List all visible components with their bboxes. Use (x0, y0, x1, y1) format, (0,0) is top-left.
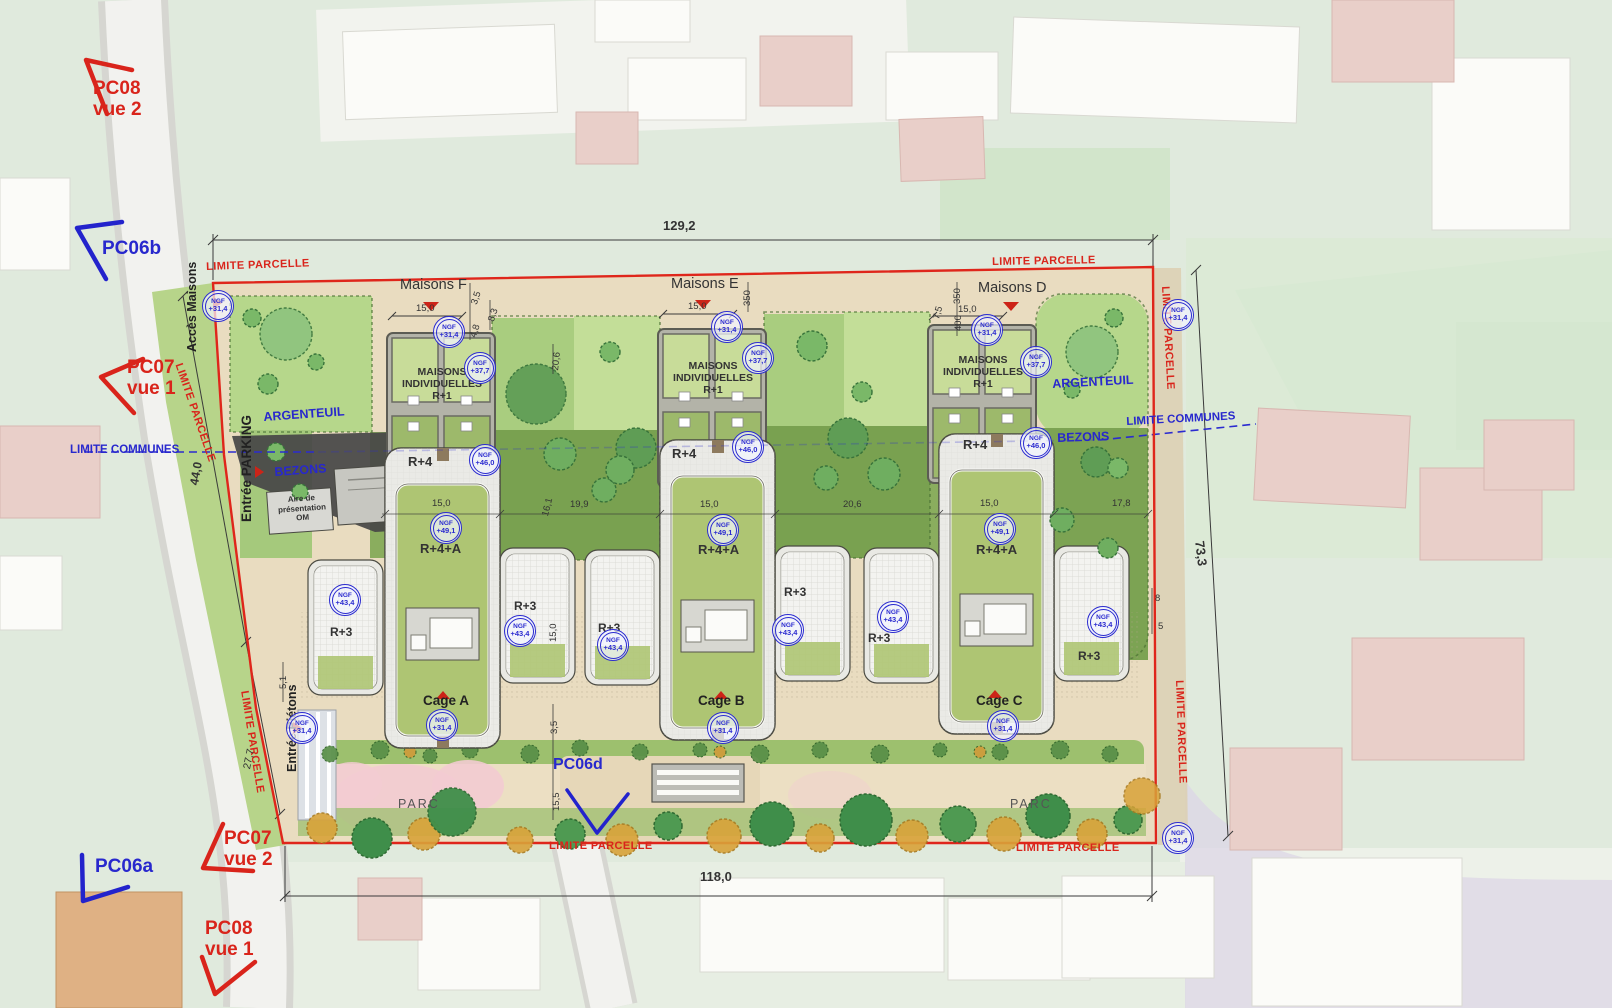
ngf-marker-r4a-d: NGF+49,1 (984, 513, 1016, 545)
limite-parcelle-south-left: LIMITE PARCELLE (549, 841, 653, 853)
pc06b-label: PC06b (102, 238, 161, 259)
r3-label-6: R+3 (1078, 650, 1100, 663)
limite-parcelle-east-lower: LIMITE PARCELLE (1172, 680, 1187, 784)
limite-parcelle-top-right: LIMITE PARCELLE (992, 255, 1096, 268)
ngf-marker-r4a-f: NGF+49,1 (430, 512, 462, 544)
ngf-marker-se: NGF+31,4 (1162, 822, 1194, 854)
cage-b-label: Cage B (698, 694, 745, 708)
ngf-marker-cage-a: NGF+31,4 (426, 709, 458, 741)
maisons-e-label: Maisons E (671, 277, 739, 292)
r3-label-5: R+3 (868, 632, 890, 645)
r4-label-f: R+4 (408, 455, 432, 469)
parc-label-west: PARC (398, 798, 440, 811)
dim-15-f-top: 15,0 (416, 304, 435, 314)
ngf-marker-r4-e: NGF+46,0 (732, 431, 764, 463)
dim-15-d-top: 15,0 (958, 305, 977, 315)
ngf-marker-r3-2: NGF+43,4 (504, 615, 536, 647)
limite-communes-west: LIMITE COMMUNES (70, 444, 179, 456)
pc08-vue1-label: PC08vue 1 (205, 918, 254, 961)
pc06a-label: PC06a (95, 856, 153, 877)
bezons-east: BEZONS (1057, 430, 1110, 445)
ngf-marker-cage-b: NGF+31,4 (707, 712, 739, 744)
r4a-label-f: R+4+A (420, 542, 461, 556)
dim-top-total: 129,2 (663, 219, 696, 233)
ngf-marker-r3-6: NGF+43,4 (1087, 606, 1119, 638)
dim-350-e: 350 (743, 290, 753, 306)
pc07-vue2-label: PC07vue 2 (224, 828, 273, 871)
r3-label-1: R+3 (330, 626, 352, 639)
pc06d-label: PC06d (553, 756, 603, 774)
dim-15-d-mid: 15,0 (980, 499, 999, 509)
dim-20-6-f: 20,6 (551, 352, 563, 371)
r3-label-2: R+3 (514, 600, 536, 613)
pc08-vue2-label: PC08vue 2 (93, 78, 142, 121)
site-plan: PC08vue 2 PC06b PC07vue 1 PC06a PC07vue … (0, 0, 1612, 1008)
ngf-marker-f-court: NGF+31,4 (433, 316, 465, 348)
ngf-marker-r3-4: NGF+43,4 (772, 614, 804, 646)
ngf-marker-ne: NGF+31,4 (1162, 299, 1194, 331)
dim-19-9: 19,9 (570, 500, 589, 510)
dim-400-d: 400 (954, 315, 964, 331)
dim-3-5-bottom: 3,5 (550, 721, 560, 734)
r4-label-d: R+4 (963, 438, 987, 452)
dim-15-5: 15,5 (552, 793, 562, 812)
limite-parcelle-south-right: LIMITE PARCELLE (1016, 843, 1120, 855)
dim-350-d: 350 (953, 288, 963, 304)
dim-right-total: 73,3 (1192, 540, 1209, 567)
ngf-marker-r3-3: NGF+43,4 (597, 629, 629, 661)
dim-15-vert: 15,0 (549, 624, 559, 643)
pc07-vue1-label: PC07vue 1 (127, 357, 176, 400)
acces-maisons-label: Accès Maisons (186, 262, 199, 352)
dim-15-e-mid: 15,0 (700, 500, 719, 510)
cage-c-label: Cage C (976, 694, 1023, 708)
dim-20-6-ed: 20,6 (843, 500, 862, 510)
aire-presentation-om-label: Aire de présentation OM (271, 492, 333, 525)
ngf-marker-e-court: NGF+31,4 (711, 311, 743, 343)
ngf-marker-r1-e: NGF+37,7 (742, 342, 774, 374)
ngf-marker-r1-f: NGF+37,7 (464, 352, 496, 384)
ngf-marker-r3-5: NGF+43,4 (877, 601, 909, 633)
entree-parking-label: Entrée PARKING (240, 415, 254, 522)
r4a-label-d: R+4+A (976, 543, 1017, 557)
ngf-marker-r4-d: NGF+46,0 (1020, 427, 1052, 459)
r3-label-4: R+3 (784, 586, 806, 599)
ngf-marker-r4-f: NGF+46,0 (469, 444, 501, 476)
r4-label-e: R+4 (672, 447, 696, 461)
ngf-marker-r4a-e: NGF+49,1 (707, 514, 739, 546)
ngf-marker-d-court: NGF+31,4 (971, 314, 1003, 346)
ngf-marker-access: NGF+31,4 (202, 290, 234, 322)
dim-5-1: 5,1 (279, 676, 289, 689)
dim-bottom-total: 118,0 (700, 870, 732, 884)
dim-5: 5 (1158, 622, 1163, 632)
parc-label-east: PARC (1010, 798, 1052, 811)
ngf-marker-pietons: NGF+31,4 (286, 712, 318, 744)
dim-8: 8 (1155, 594, 1160, 604)
maisons-d-label: Maisons D (978, 281, 1047, 296)
ngf-marker-r3-1: NGF+43,4 (329, 584, 361, 616)
ngf-marker-cage-c: NGF+31,4 (987, 710, 1019, 742)
dim-15-e-top: 15,0 (688, 302, 707, 312)
dim-17-8: 17,8 (1112, 499, 1131, 509)
dim-15-f-mid: 15,0 (432, 499, 451, 509)
cage-a-label: Cage A (423, 694, 469, 708)
ngf-marker-r1-d: NGF+37,7 (1020, 346, 1052, 378)
maisons-f-label: Maisons F (400, 278, 467, 293)
